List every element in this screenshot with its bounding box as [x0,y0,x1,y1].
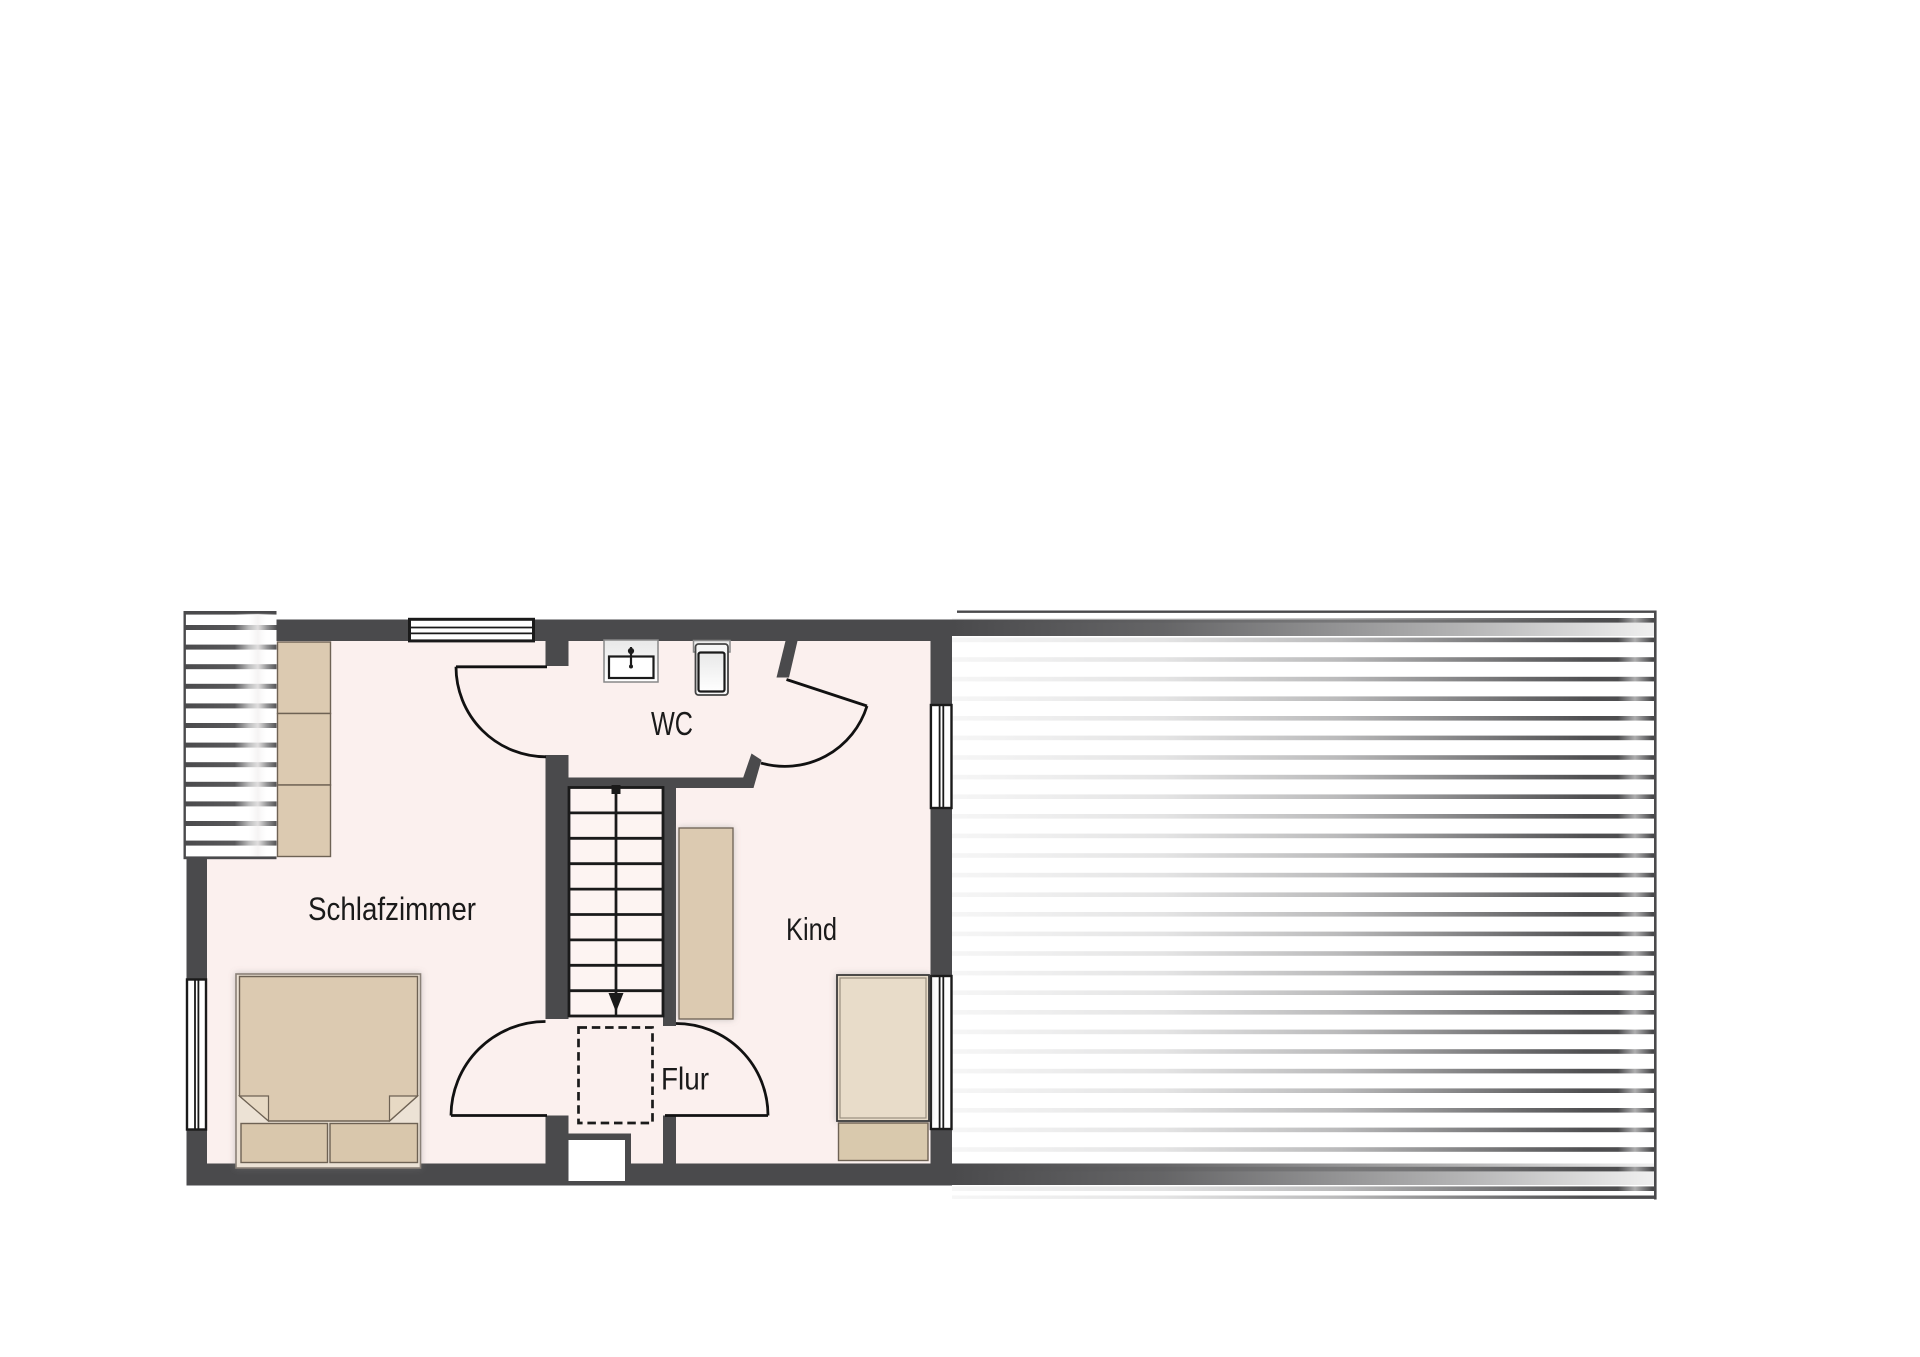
svg-text:Kind: Kind [786,911,837,947]
svg-text:Flur: Flur [661,1061,709,1097]
svg-text:WC: WC [651,706,693,743]
svg-text:Schlafzimmer: Schlafzimmer [308,891,476,927]
